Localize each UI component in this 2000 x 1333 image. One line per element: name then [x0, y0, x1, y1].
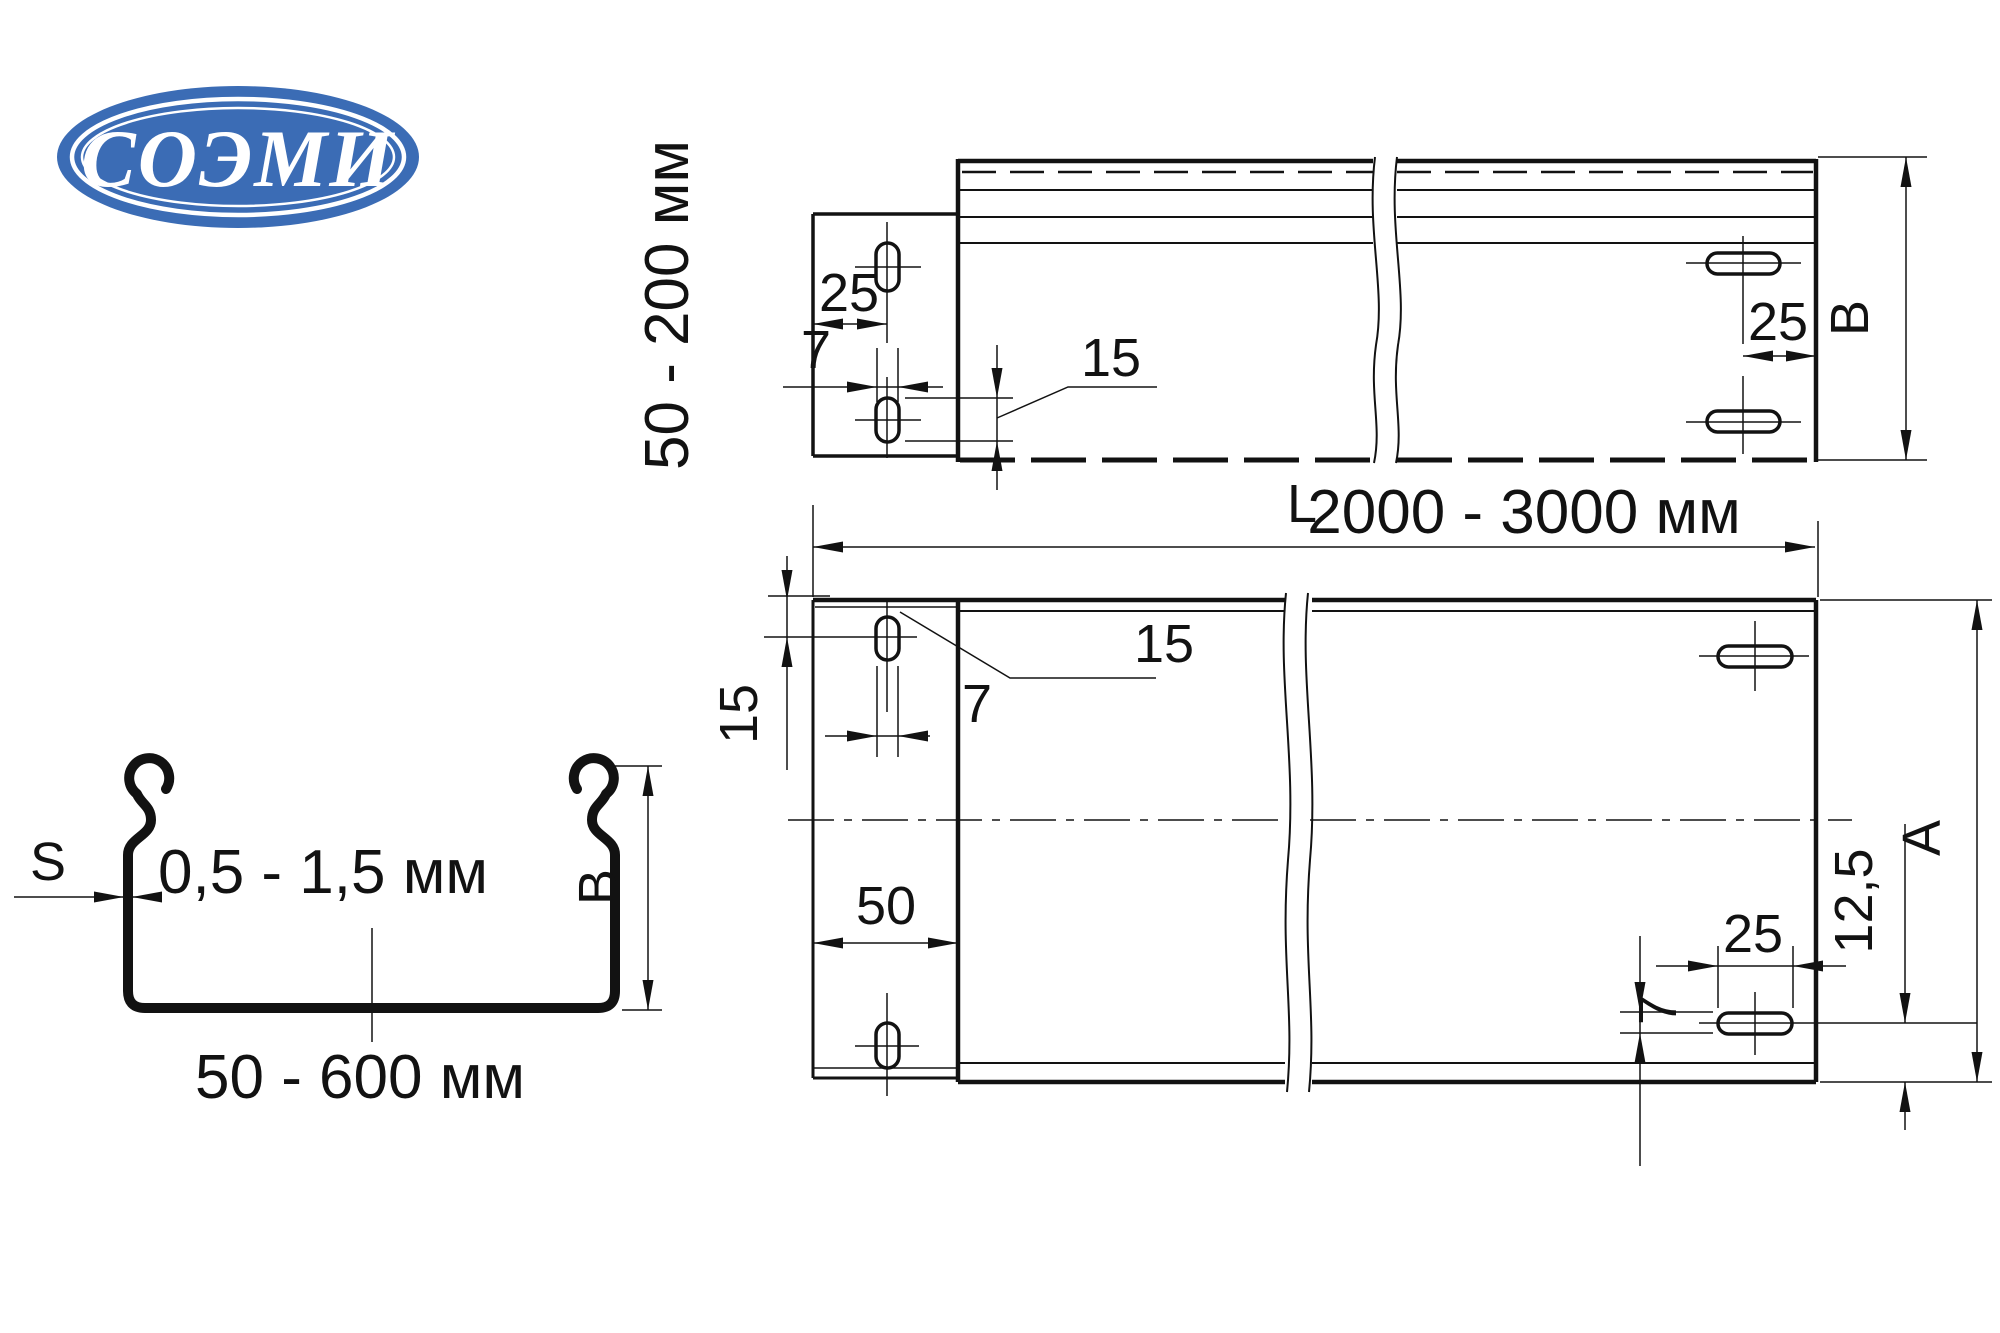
plan-view: 15 7 15 50 — [709, 556, 1992, 1166]
dim-label: B — [568, 869, 628, 905]
dim-label: A — [1892, 820, 1952, 856]
dim-label: 15 — [1134, 614, 1194, 674]
dim-end-hole-offset: 25 — [1743, 292, 1816, 362]
logo-wordmark: СОЭМИ — [81, 113, 395, 204]
length-dimension: L 2000 - 3000 мм — [813, 474, 1818, 597]
side-view: 25 7 15 — [633, 140, 1927, 490]
dim-label: 7 — [801, 320, 831, 380]
dim-label: B — [1820, 300, 1880, 336]
dim-label: 15 — [709, 684, 769, 744]
dim-slot-edge-offset: 12,5 — [1820, 824, 1992, 1130]
dim-label: 25 — [1723, 904, 1783, 964]
dim-label: 7 — [1628, 995, 1688, 1025]
dim-height-B: B — [1818, 157, 1927, 460]
dim-slot-width: 7 — [783, 320, 943, 402]
dim-slot-length: 15 — [905, 328, 1157, 490]
dim-tab-slot-width: 7 — [825, 666, 992, 757]
side-connector-tab — [813, 214, 958, 458]
dim-label: 50 — [856, 876, 916, 936]
dim-label: S — [30, 832, 66, 892]
dim-slot-length-leader: 15 — [900, 612, 1194, 678]
logo: СОЭМИ — [57, 86, 419, 228]
thickness-range-label: 0,5 - 1,5 мм — [158, 838, 488, 907]
cross-section-view: S 0,5 - 1,5 мм B 50 - 600 мм — [14, 758, 662, 1112]
technical-drawing: СОЭМИ — [0, 0, 2000, 1333]
length-range-label: 2000 - 3000 мм — [1307, 478, 1740, 547]
dim-end-slot-width: 7 — [1620, 936, 1713, 1166]
plan-break-lines — [1284, 593, 1313, 1092]
width-range-label: 50 - 600 мм — [195, 1043, 525, 1112]
side-break-lines — [1373, 157, 1401, 463]
dim-label: 25 — [1748, 292, 1808, 352]
side-body-edges — [958, 159, 1816, 462]
dim-label: 15 — [1081, 328, 1141, 388]
side-height-range-label: 50 - 200 мм — [633, 140, 702, 470]
dim-label: 25 — [819, 263, 879, 323]
dim-label: 12,5 — [1824, 848, 1884, 953]
dim-tab-length: 50 — [813, 876, 958, 949]
dim-label: 7 — [962, 674, 992, 734]
drawing-sheet: СОЭМИ — [0, 0, 2000, 1333]
